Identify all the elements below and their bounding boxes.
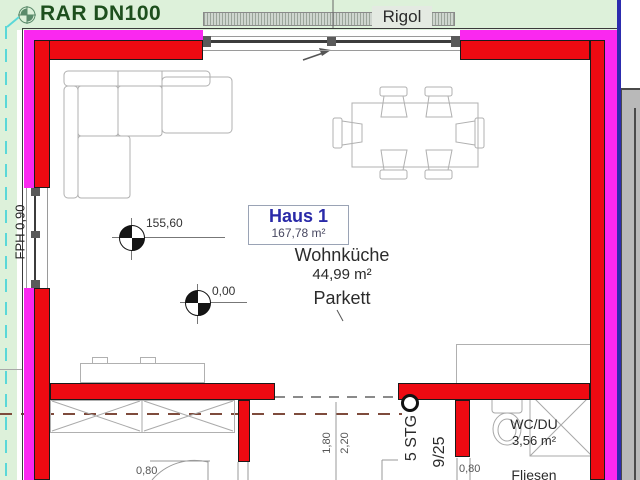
room-name: Wohnküche <box>262 245 422 266</box>
kitchen-counter-right-edge <box>456 344 590 345</box>
wall-top-right-outer <box>460 30 617 40</box>
wall-outline-top <box>23 28 617 29</box>
window-top-glass-1 <box>205 40 329 43</box>
drain-symbol-icon <box>18 6 36 24</box>
house-info-box: Haus 1 167,78 m² <box>248 205 349 245</box>
room-floor: Parkett <box>262 288 422 308</box>
dim-door-wc: 0,80 <box>459 463 480 475</box>
elevation-marker-lower-icon <box>185 290 211 316</box>
dining-table-set <box>333 87 484 179</box>
stairs-label-1: 5 STG <box>403 415 421 461</box>
stairs-label-2: 9/25 <box>431 436 449 467</box>
wc-area: 3,56 m² <box>498 433 570 448</box>
window-top-jamb-right <box>451 36 460 47</box>
window-left-inner-sill <box>47 188 48 288</box>
floor-plan: Rigol <box>0 0 640 480</box>
wall-top-left-outer <box>24 30 203 40</box>
wc-floor: Fliesen <box>498 467 570 480</box>
door-left <box>150 460 248 480</box>
wc-name: WC/DU <box>498 416 570 432</box>
wall-stub-wc <box>455 400 470 457</box>
wall-left-lower <box>34 288 50 480</box>
dim-opening-height: 2,20 <box>339 432 351 453</box>
elevation-lower-value: 0,00 <box>212 284 235 298</box>
elevation-marker-upper-icon <box>119 225 145 251</box>
house-name: Haus 1 <box>249 206 348 227</box>
wall-right <box>590 40 605 480</box>
room-living-kitchen: Wohnküche 44,99 m² Parkett <box>262 245 422 308</box>
window-top-glass-2 <box>333 40 457 43</box>
dim-door-left: 0,80 <box>136 465 157 477</box>
room-area: 44,99 m² <box>262 266 422 284</box>
wall-left-upper-outer <box>24 40 34 188</box>
wall-stub-left <box>238 400 250 462</box>
window-top-inner-sill <box>203 50 460 51</box>
window-left-mullion <box>31 231 40 238</box>
kitchen-counter-left <box>80 363 205 383</box>
elevation-upper-value: 155,60 <box>146 216 183 230</box>
house-area: 167,78 m² <box>249 227 348 240</box>
counter-fixture-2 <box>140 357 156 364</box>
window-left-jamb-top <box>31 188 40 196</box>
drain-connector-line <box>7 17 19 27</box>
counter-fixture-1 <box>92 357 108 364</box>
floor-leader-line <box>337 310 343 321</box>
window-left-glass <box>34 188 36 288</box>
window-top-jamb-left <box>203 36 211 47</box>
column <box>401 394 419 412</box>
wall-right-outer <box>605 40 617 480</box>
wall-left-lower-outer <box>24 288 34 480</box>
parapet-label: FPH 0,90 <box>13 205 28 260</box>
wall-interior-right <box>398 383 590 400</box>
kitchen-counter-right-side <box>456 344 457 383</box>
window-left-jamb-bottom <box>31 280 40 288</box>
dim-opening-width: 1,80 <box>321 432 333 453</box>
window-top-mullion <box>327 37 336 46</box>
wall-top-right <box>460 40 590 60</box>
cabinet-row <box>50 400 235 433</box>
sofa <box>64 71 232 198</box>
drain-label: RAR DN100 <box>40 2 161 26</box>
wall-left-upper <box>34 40 50 188</box>
wall-top-left <box>34 40 203 60</box>
wall-interior-left <box>50 383 275 400</box>
